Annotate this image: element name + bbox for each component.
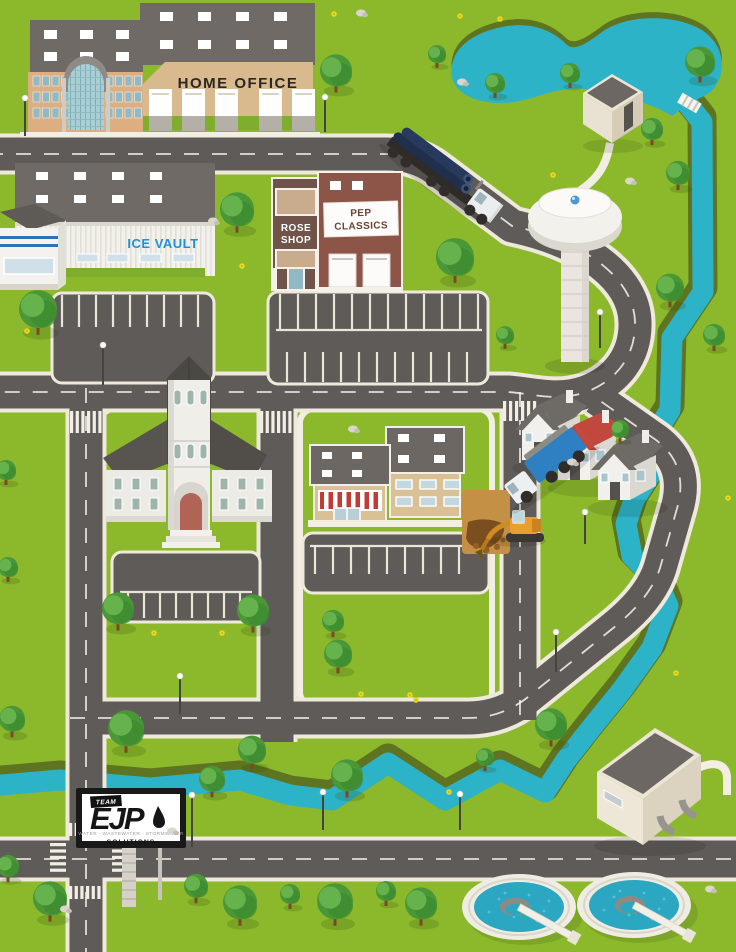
church-tower-window (200, 390, 207, 405)
church-window (238, 478, 246, 490)
chimney (642, 430, 649, 443)
crosswalk-bar (87, 411, 90, 433)
tree-foliage-light (225, 888, 246, 909)
tree-foliage-light (239, 738, 256, 755)
billboard-team-ribbon: TEAM (96, 799, 117, 807)
church-window (256, 478, 264, 490)
crosswalk-bar (515, 401, 518, 421)
dock-ramp (259, 116, 282, 131)
flower-center (26, 330, 28, 332)
tree-shadow (326, 632, 347, 639)
skylight-window (398, 434, 409, 442)
tree-shadow (324, 86, 354, 97)
flower-center (409, 694, 411, 696)
flower (407, 692, 413, 698)
crosswalk-bar (92, 886, 95, 899)
crosswalk-bar (75, 886, 78, 899)
shop-window (444, 497, 460, 506)
water-speckle (498, 898, 501, 901)
office-window (135, 76, 142, 86)
water-speckle (543, 910, 546, 913)
church-window (132, 478, 140, 490)
tree-shadow (335, 791, 365, 802)
crosswalk-bar (86, 886, 89, 899)
crosswalk-bar (98, 411, 101, 433)
shop-window (420, 497, 436, 506)
tree-shadow (479, 767, 496, 773)
church-window (150, 498, 158, 510)
flower-center (675, 672, 677, 674)
warehouse-window (74, 172, 86, 180)
flower (673, 670, 679, 676)
shop-awning (319, 491, 381, 510)
rock (463, 82, 469, 86)
flower-center (360, 693, 362, 695)
tree-foliage-light (323, 612, 337, 626)
lamp-light (320, 789, 326, 795)
crosswalk-bar (277, 411, 280, 433)
tree-shadow (284, 905, 303, 912)
church-tower-window (174, 444, 181, 459)
tree-foliage-light (407, 890, 427, 910)
flower-center (552, 174, 554, 176)
dock-ramp (215, 116, 238, 131)
tree-foliage-light (322, 57, 342, 77)
church-tower-window (187, 444, 194, 459)
flower-center (499, 18, 501, 20)
tree-foliage-light (222, 195, 243, 216)
skylight-window (352, 470, 362, 477)
pep-sign-line2: CLASSICS (334, 220, 388, 232)
house-window (636, 470, 645, 481)
tree-shadow (0, 481, 19, 488)
tree-foliage-light (21, 294, 45, 318)
dock-door-vent (218, 93, 235, 95)
tree-foliage-light (110, 713, 132, 735)
tree-foliage-light (687, 49, 706, 68)
warehouse-window (274, 12, 287, 21)
crosswalk-bar (271, 411, 274, 433)
office-window (116, 92, 123, 102)
tree-shadow (499, 345, 516, 351)
warehouse-window (112, 195, 124, 203)
tree-foliage-light (704, 326, 718, 340)
crosswalk-bar (69, 823, 72, 836)
lamp-light (100, 342, 106, 348)
atrium-glass (68, 64, 104, 130)
rock (354, 429, 360, 433)
office-window (52, 92, 59, 102)
tree-shadow (380, 902, 399, 909)
rock (173, 831, 179, 835)
shop-window (396, 497, 412, 506)
tree-foliage-light (0, 708, 16, 724)
flower-center (221, 632, 223, 634)
office-window (43, 108, 50, 118)
office-window (125, 92, 132, 102)
tree-foliage-light (612, 422, 623, 433)
flower (413, 697, 419, 703)
tree-shadow (112, 745, 146, 757)
flower-center (241, 265, 243, 267)
crosswalk-bar (266, 411, 269, 433)
warehouse-window (150, 195, 162, 203)
tree-shadow (321, 918, 355, 930)
crosswalk-bar (80, 886, 83, 899)
tree-shadow (689, 76, 718, 86)
office-window (33, 92, 40, 102)
crosswalk-bar (50, 869, 66, 872)
office-window (43, 76, 50, 86)
tree-shadow (614, 439, 631, 445)
tree-foliage-light (281, 886, 293, 898)
tree-shadow (106, 624, 136, 635)
crosswalk-bar (288, 411, 291, 433)
water-speckle (603, 909, 606, 912)
tree-shadow (645, 140, 666, 147)
tree-foliage-light (35, 884, 56, 905)
rock (573, 462, 579, 466)
crosswalk-bar (50, 849, 66, 852)
ice-vault-sign: ICE VAULT (127, 236, 198, 251)
flower-center (415, 699, 417, 701)
flower-center (448, 791, 450, 793)
lamp-light (189, 792, 195, 798)
pep-sign-line1: PEP (350, 208, 371, 220)
dock-door-vent (152, 93, 169, 95)
church-tower-window (174, 390, 181, 405)
tree-shadow (707, 346, 728, 353)
warehouse-window (116, 30, 129, 39)
crosswalk-bar (521, 401, 524, 421)
skylight-window (322, 452, 332, 459)
crosswalk-bar (97, 886, 100, 899)
flower (24, 328, 30, 334)
church-door (180, 493, 202, 530)
tree-shadow (564, 84, 583, 91)
dock-door-vent (262, 93, 279, 95)
tree-shadow (203, 792, 228, 801)
lamp-light (22, 95, 28, 101)
rose-shop-building: ROSE SHOP (272, 178, 320, 290)
flower-center (333, 13, 335, 15)
office-window (135, 108, 142, 118)
shop-window (444, 480, 460, 489)
flower (725, 495, 731, 501)
office-window (33, 108, 40, 118)
lamp-light (597, 309, 603, 315)
tree-shadow (188, 898, 211, 906)
tree-shadow (37, 914, 69, 926)
office-window (43, 92, 50, 102)
chimney (566, 390, 573, 403)
tree-foliage-light (333, 762, 353, 782)
flower (358, 691, 364, 697)
water-speckle (548, 900, 551, 903)
warehouse-window (80, 30, 93, 39)
warehouse-window (236, 12, 249, 21)
dock-ramp (292, 116, 315, 131)
tree-shadow (670, 185, 693, 193)
church-window (114, 498, 122, 510)
rose-shop-sign-line1: ROSE (281, 223, 311, 234)
warehouse-window (116, 52, 129, 61)
tree-foliage-light (185, 876, 200, 891)
warehouse-window (74, 195, 86, 203)
warehouse-window (198, 12, 211, 21)
water-speckle (513, 916, 516, 919)
shop-window (420, 480, 436, 489)
warehouse-window (44, 52, 57, 61)
billboard-solutions: SOLUTIONS (107, 839, 156, 846)
office-window (125, 108, 132, 118)
warehouse-window (44, 30, 57, 39)
flower (457, 13, 463, 19)
house-window (525, 433, 532, 442)
water-speckle (643, 892, 646, 895)
crosswalk-bar (260, 411, 263, 433)
flower (497, 16, 503, 22)
flower (151, 630, 157, 636)
water-speckle (613, 896, 616, 899)
tree-foliage-light (319, 886, 341, 908)
tree-foliage-light (104, 595, 124, 615)
skylight-window (322, 470, 332, 477)
tree-shadow (328, 667, 355, 677)
tree-shadow (1, 877, 22, 884)
shop-window (396, 480, 412, 489)
tree-foliage-light (429, 47, 440, 58)
office-window (135, 92, 142, 102)
crosswalk-bar (50, 862, 66, 865)
tree-foliage-light (477, 750, 488, 761)
warehouse-window (160, 12, 173, 21)
flower-center (727, 497, 729, 499)
ice-vault-window (173, 254, 194, 262)
tree-foliage-light (239, 597, 259, 617)
skylight-window (352, 452, 362, 459)
tree-foliage-light (200, 768, 216, 784)
tree-shadow (409, 919, 439, 930)
crosswalk-bar (76, 411, 79, 433)
water-speckle (619, 890, 622, 893)
warehouse-window (160, 40, 173, 49)
crosswalk-bar (69, 886, 72, 899)
warehouse-window (36, 195, 48, 203)
crosswalk-bar (50, 843, 66, 846)
tree (436, 238, 476, 287)
tree-foliage-light (438, 242, 462, 266)
lamp-light (177, 673, 183, 679)
church-window (220, 478, 228, 490)
flower (550, 172, 556, 178)
church-window (114, 478, 122, 490)
house-door (610, 482, 620, 500)
church-window (238, 498, 246, 510)
tree-shadow (660, 301, 687, 311)
town-map-illustration: HOME OFFICE ICE VAULT ROSE SHOP PEP CLAS… (0, 0, 736, 952)
parking-lot-shops (303, 533, 489, 593)
rock (711, 889, 717, 893)
flower-center (153, 632, 155, 634)
tree-foliage-light (486, 75, 498, 87)
rock (362, 13, 368, 17)
excavator-cab-glass (514, 512, 523, 521)
house-window (601, 473, 608, 482)
flower (219, 630, 225, 636)
skylight-window (398, 455, 409, 463)
warehouse-window (112, 172, 124, 180)
ice-vault-building: ICE VAULT (0, 163, 215, 290)
tree-foliage-light (325, 642, 342, 659)
rock (214, 221, 220, 225)
crosswalk-bar (509, 401, 512, 421)
home-office-building: HOME OFFICE (20, 3, 320, 137)
dock-door-vent (295, 93, 312, 95)
dock-door-vent (185, 93, 202, 95)
rose-shop-sign-line2: SHOP (281, 235, 311, 246)
house-shadow (588, 499, 668, 517)
tree-foliage-light (497, 328, 508, 339)
tree-shadow (440, 275, 476, 288)
church-tower-window (200, 444, 207, 459)
flower (331, 11, 337, 17)
excavator-tracks (506, 533, 544, 542)
water-speckle (663, 898, 666, 901)
skylight-window (434, 434, 445, 442)
church-window (150, 478, 158, 490)
tree-shadow (3, 732, 28, 741)
ice-vault-window (77, 254, 98, 262)
warehouse-window (150, 172, 162, 180)
tree-shadow (227, 918, 259, 930)
office-window (52, 76, 59, 86)
church-window (256, 498, 264, 510)
dock-ramp (182, 116, 205, 131)
warehouse-window (236, 40, 249, 49)
flower (239, 263, 245, 269)
water-speckle (504, 892, 507, 895)
crosswalk-bar (70, 411, 73, 433)
warehouse-window (274, 40, 287, 49)
tree-foliage-light (561, 65, 573, 77)
crosswalk-bar (50, 856, 66, 859)
ice-vault-office-annex (0, 204, 66, 290)
tree-shadow (539, 740, 569, 751)
water-tower-cap (571, 196, 580, 205)
tree-shadow (241, 626, 271, 637)
skylight-window (434, 455, 445, 463)
crosswalk-bar (81, 411, 84, 433)
tree-foliage-light (667, 163, 682, 178)
church-window (132, 498, 140, 510)
tree-shadow (489, 94, 508, 101)
lamp-light (457, 791, 463, 797)
tree-foliage-light (377, 883, 389, 895)
pep-classics-building: PEP CLASSICS (318, 172, 402, 292)
ice-vault-window (140, 254, 161, 262)
church-tower-window (187, 390, 194, 405)
lamp-light (553, 629, 559, 635)
flower (446, 789, 452, 795)
water-speckle (628, 914, 631, 917)
rose-shop-door (288, 268, 304, 290)
church-window (220, 498, 228, 510)
tree-shadow (242, 763, 269, 773)
flower-center (459, 15, 461, 17)
tree-shadow (431, 64, 448, 70)
rock (66, 909, 72, 913)
office-window (116, 76, 123, 86)
rock (631, 181, 637, 185)
warehouse-window (198, 40, 211, 49)
crosswalk-bar (283, 411, 286, 433)
warehouse-window (36, 172, 48, 180)
office-window (33, 76, 40, 86)
tree-shadow (224, 225, 256, 237)
water-speckle (488, 911, 491, 914)
office-window (52, 108, 59, 118)
office-window (116, 108, 123, 118)
lamp-light (582, 509, 588, 515)
lamp-light (322, 94, 328, 100)
tree-foliage-light (657, 276, 674, 293)
crosswalk-bar (503, 401, 506, 421)
tree-foliage-light (537, 711, 557, 731)
house-window (622, 473, 629, 482)
tree-shadow (2, 578, 21, 585)
office-window (125, 76, 132, 86)
water-speckle (658, 908, 661, 911)
map-canvas: HOME OFFICE ICE VAULT ROSE SHOP PEP CLAS… (0, 0, 736, 952)
crosswalk-bar (93, 411, 96, 433)
tree-foliage-light (642, 120, 656, 134)
water-speckle (528, 894, 531, 897)
ice-vault-window (107, 254, 128, 262)
dock-ramp (149, 116, 172, 131)
chimney (602, 410, 609, 423)
